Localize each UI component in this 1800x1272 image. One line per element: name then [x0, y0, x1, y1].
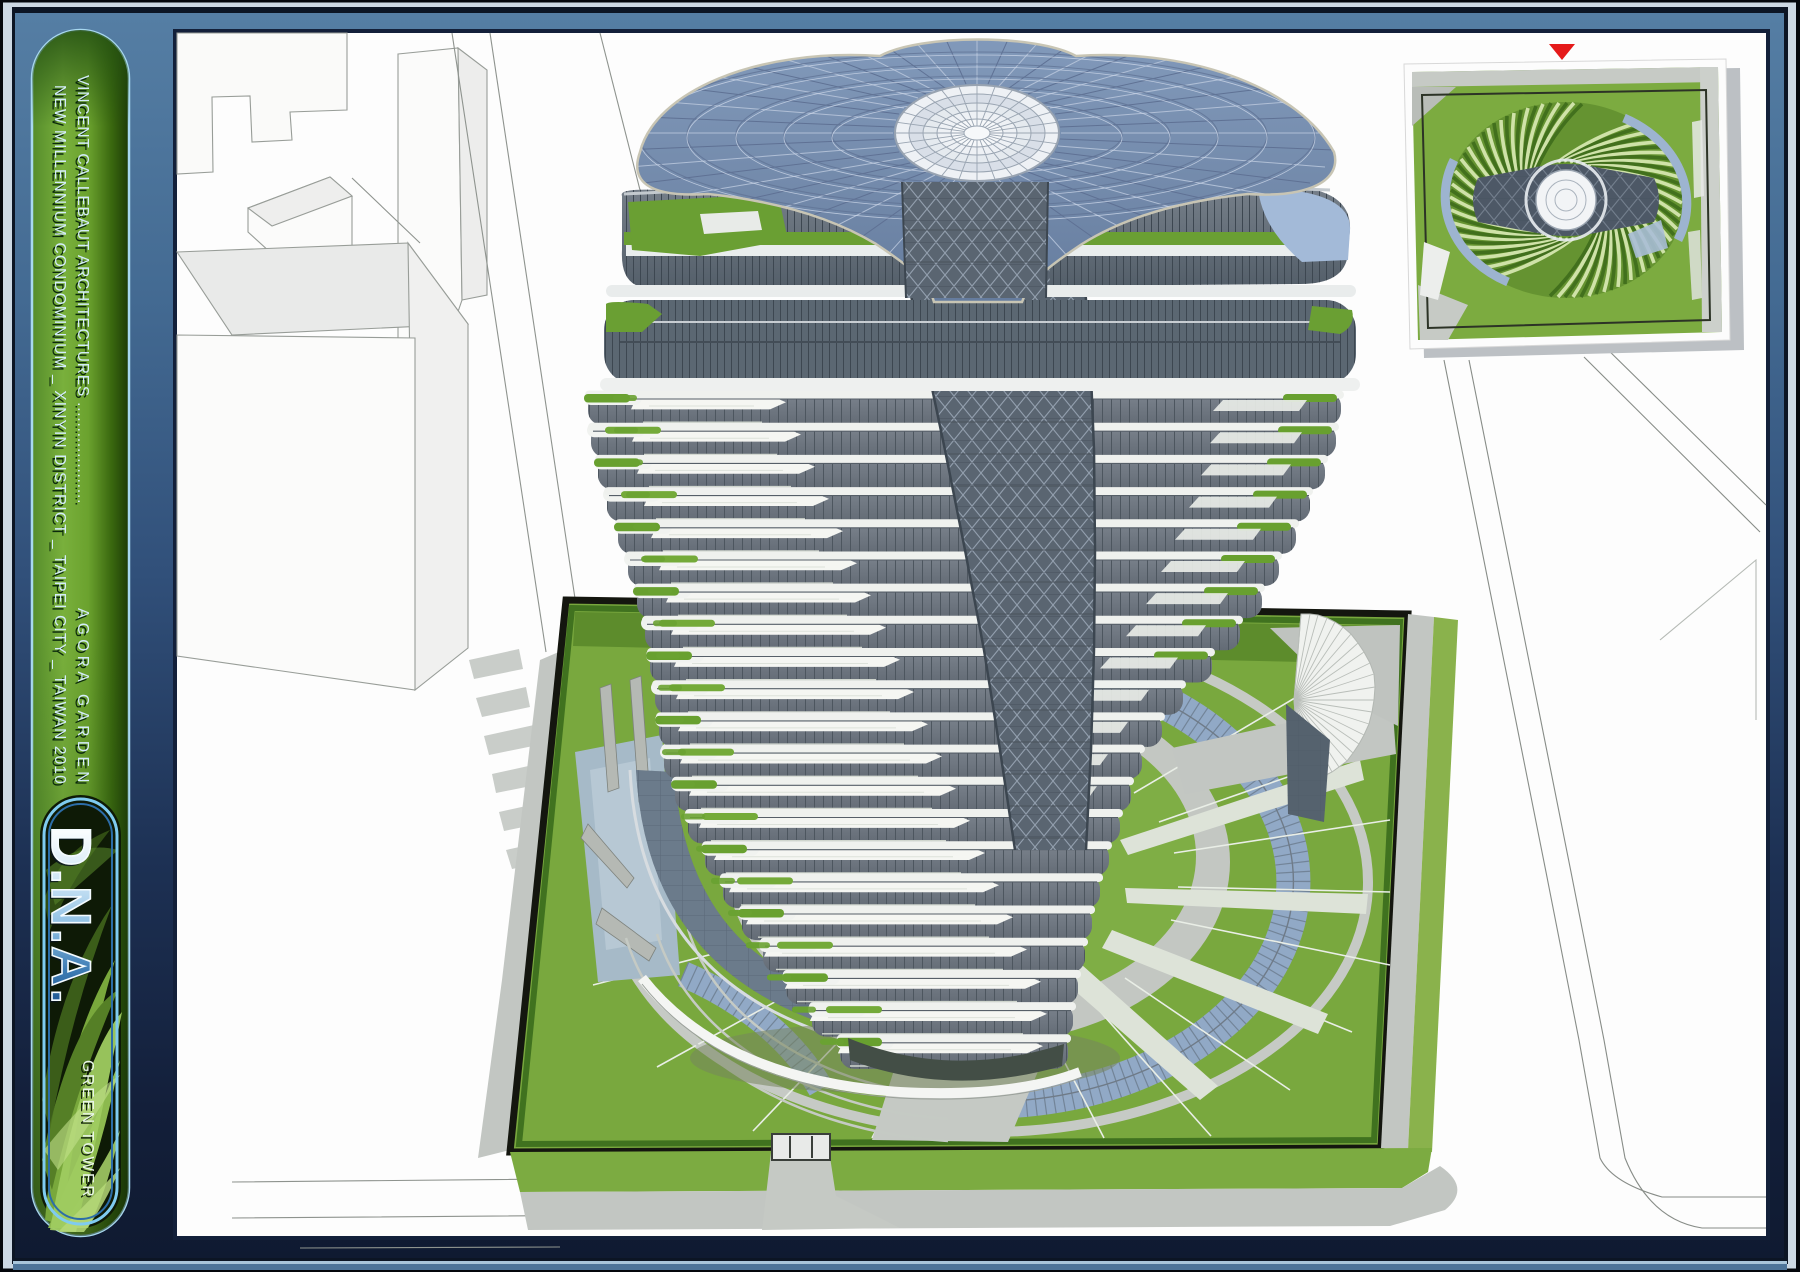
svg-text:GREEN TOWER: GREEN TOWER	[79, 1060, 96, 1199]
svg-text:D.N.A.: D.N.A.	[40, 826, 103, 1006]
svg-text:AGORA GARDEN: AGORA GARDEN	[74, 608, 91, 784]
svg-text:VINCENT CALLEBAUT ARCHITECTURE: VINCENT CALLEBAUT ARCHITECTURES ........…	[74, 75, 91, 505]
svg-text:NEW MILLENNIUM CONDOMINIUM _ X: NEW MILLENNIUM CONDOMINIUM _ XINYIN DIST…	[51, 85, 68, 785]
